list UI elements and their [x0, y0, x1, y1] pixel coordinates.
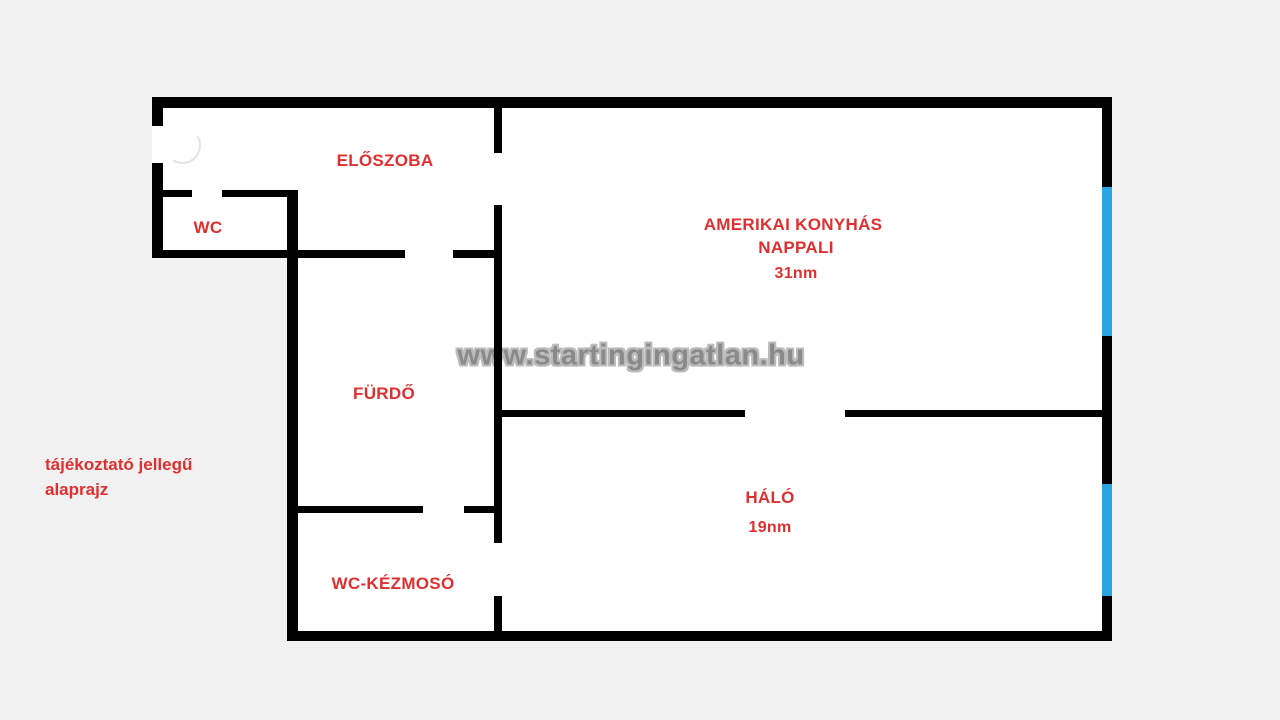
- wall-top-outer: [152, 97, 1112, 108]
- room-area-halo: 19nm: [749, 519, 792, 537]
- wall-divider-vertical-bottom: [494, 596, 502, 641]
- window-marker-living-room: [1102, 187, 1112, 336]
- wall-hallway-bottom-left: [152, 250, 405, 258]
- wall-left-upper: [152, 97, 163, 126]
- room-label-wc: WC: [194, 218, 223, 238]
- wall-wc-top-left: [152, 190, 192, 197]
- floorplan-canvas: www.startingingatlan.hu ELŐSZOBA WC AMER…: [0, 0, 1280, 720]
- wall-bathroom-wc-left: [287, 506, 423, 513]
- disclaimer-line-2: alaprajz: [45, 477, 192, 502]
- disclaimer-line-1: tájékoztató jellegű: [45, 452, 192, 477]
- wall-left-main: [287, 190, 298, 641]
- room-label-halo: HÁLÓ: [745, 488, 794, 508]
- disclaimer-caption: tájékoztató jellegű alaprajz: [45, 452, 192, 502]
- room-label-nappali-line1: AMERIKAI KONYHÁS: [704, 215, 883, 235]
- wall-divider-vertical-middle: [494, 205, 502, 543]
- wall-livingroom-bedroom-left: [494, 410, 745, 417]
- wall-bathroom-wc-right: [464, 506, 502, 513]
- room-area-nappali: 31nm: [775, 265, 818, 283]
- wall-divider-vertical-top: [494, 97, 502, 153]
- wall-bottom-outer: [287, 631, 1112, 641]
- wall-livingroom-bedroom-right: [845, 410, 1112, 417]
- watermark: www.startingingatlan.hu: [457, 340, 804, 373]
- room-label-wc-kezmoso: WC-KÉZMOSÓ: [332, 574, 455, 594]
- wall-right-top: [1102, 97, 1112, 187]
- room-label-furdo: FÜRDŐ: [353, 384, 415, 404]
- window-marker-bedroom: [1102, 484, 1112, 596]
- wall-left-lower: [152, 163, 163, 258]
- room-label-nappali-line2: NAPPALI: [758, 238, 833, 258]
- wall-right-bottom: [1102, 596, 1112, 641]
- room-label-eloszoba: ELŐSZOBA: [337, 151, 434, 171]
- wall-wc-top-right: [222, 190, 295, 197]
